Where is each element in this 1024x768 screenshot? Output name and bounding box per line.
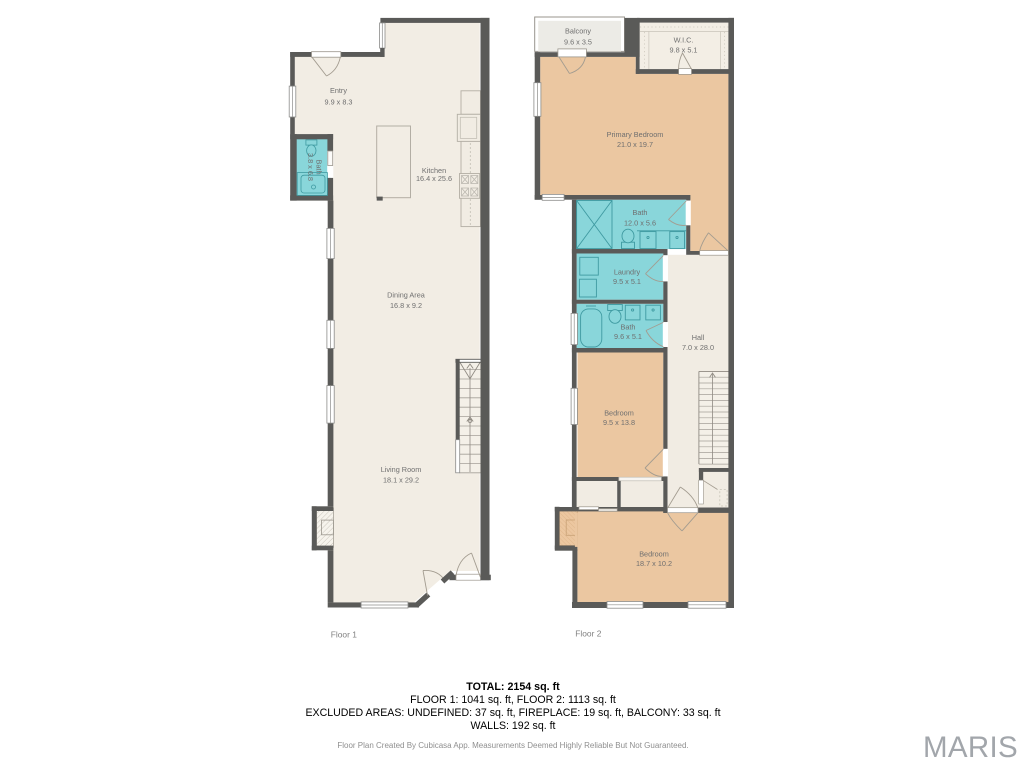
svg-text:Balcony: Balcony <box>565 27 591 36</box>
svg-text:9.6 x 5.1: 9.6 x 5.1 <box>614 332 642 341</box>
svg-text:16.8 x 9.2: 16.8 x 9.2 <box>390 301 422 310</box>
svg-text:Floor 2: Floor 2 <box>575 629 601 639</box>
svg-text:9.5 x 13.8: 9.5 x 13.8 <box>603 418 635 427</box>
svg-text:Entry: Entry <box>330 86 347 95</box>
svg-text:Bedroom: Bedroom <box>604 409 634 418</box>
svg-text:16.4 x 25.6: 16.4 x 25.6 <box>416 174 452 183</box>
svg-text:Hall: Hall <box>692 333 705 342</box>
svg-text:W.I.C.: W.I.C. <box>674 36 694 45</box>
svg-text:21.0 x 19.7: 21.0 x 19.7 <box>617 140 653 149</box>
svg-text:EXCLUDED AREAS: UNDEFINED: 37: EXCLUDED AREAS: UNDEFINED: 37 sq. ft, FI… <box>305 707 720 719</box>
svg-text:WALLS: 192 sq. ft: WALLS: 192 sq. ft <box>471 720 556 732</box>
svg-text:18.7 x 10.2: 18.7 x 10.2 <box>636 559 672 568</box>
svg-text:Bath: Bath <box>620 323 635 332</box>
svg-text:Bedroom: Bedroom <box>639 550 669 559</box>
svg-text:3.8 x 6.8: 3.8 x 6.8 <box>306 153 315 181</box>
svg-text:Laundry: Laundry <box>614 268 641 277</box>
svg-text:12.0 x 5.6: 12.0 x 5.6 <box>624 219 656 228</box>
svg-text:9.5 x 5.1: 9.5 x 5.1 <box>613 277 641 286</box>
svg-text:Primary Bedroom: Primary Bedroom <box>607 130 664 139</box>
svg-text:9.9 x 8.3: 9.9 x 8.3 <box>325 98 353 107</box>
svg-text:Bath: Bath <box>632 208 647 217</box>
svg-text:9.6 x 3.5: 9.6 x 3.5 <box>564 38 592 47</box>
svg-text:Floor Plan Created By Cubicasa: Floor Plan Created By Cubicasa App. Meas… <box>337 741 688 750</box>
svg-text:Dining Area: Dining Area <box>387 291 426 300</box>
svg-text:7.0 x 28.0: 7.0 x 28.0 <box>682 343 714 352</box>
svg-text:TOTAL: 2154 sq. ft: TOTAL: 2154 sq. ft <box>466 681 560 693</box>
svg-text:FLOOR 1: 1041 sq. ft, FLOOR 2:: FLOOR 1: 1041 sq. ft, FLOOR 2: 1113 sq. … <box>410 694 616 706</box>
svg-text:9.8 x 5.1: 9.8 x 5.1 <box>670 46 698 55</box>
svg-text:Floor 1: Floor 1 <box>331 629 357 639</box>
svg-text:Living Room: Living Room <box>381 465 422 474</box>
svg-text:18.1 x 29.2: 18.1 x 29.2 <box>383 476 419 485</box>
svg-text:MARIS: MARIS <box>923 731 1018 764</box>
